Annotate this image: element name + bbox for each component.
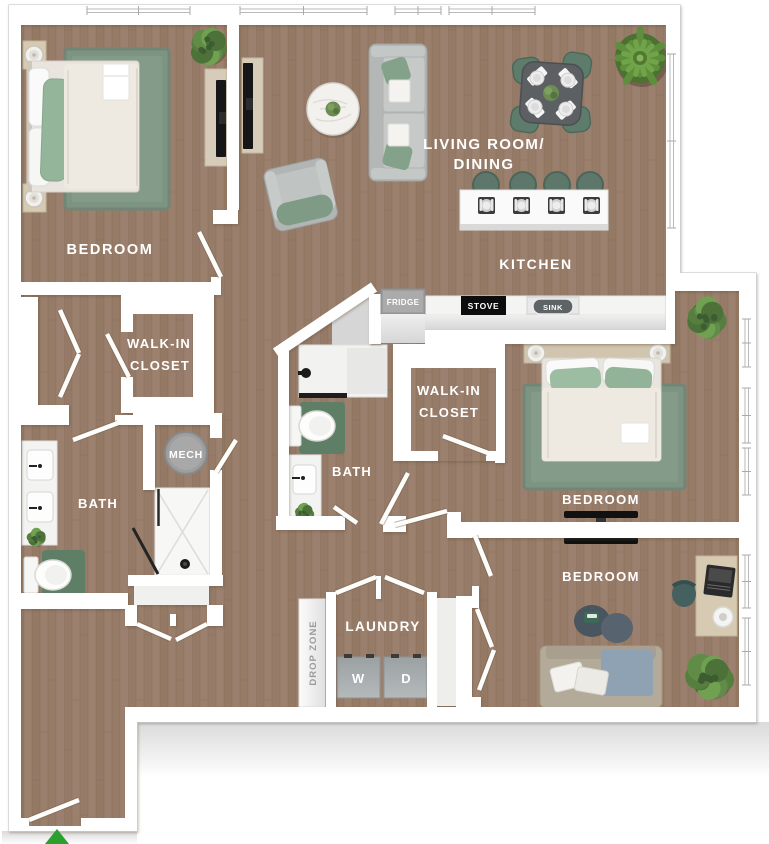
svg-text:DINING: DINING <box>454 156 515 173</box>
svg-text:BATH: BATH <box>332 464 372 479</box>
svg-text:BATH: BATH <box>78 496 118 511</box>
svg-text:SINK: SINK <box>543 303 563 312</box>
svg-text:DROP ZONE: DROP ZONE <box>308 620 319 685</box>
svg-text:WALK-IN: WALK-IN <box>127 336 191 351</box>
svg-text:KITCHEN: KITCHEN <box>499 256 572 272</box>
svg-text:CLOSET: CLOSET <box>130 358 190 373</box>
svg-text:MECH: MECH <box>169 449 203 461</box>
svg-text:W: W <box>352 671 365 686</box>
svg-text:STOVE: STOVE <box>468 301 500 311</box>
svg-text:BEDROOM: BEDROOM <box>562 569 640 584</box>
svg-text:FRIDGE: FRIDGE <box>387 298 420 307</box>
svg-text:WALK-IN: WALK-IN <box>417 383 481 398</box>
svg-text:LIVING ROOM/: LIVING ROOM/ <box>423 136 545 153</box>
svg-text:BEDROOM: BEDROOM <box>562 492 640 507</box>
svg-text:BEDROOM: BEDROOM <box>67 242 154 258</box>
svg-text:D: D <box>401 671 410 686</box>
svg-text:LAUNDRY: LAUNDRY <box>345 619 420 634</box>
svg-text:CLOSET: CLOSET <box>419 405 479 420</box>
